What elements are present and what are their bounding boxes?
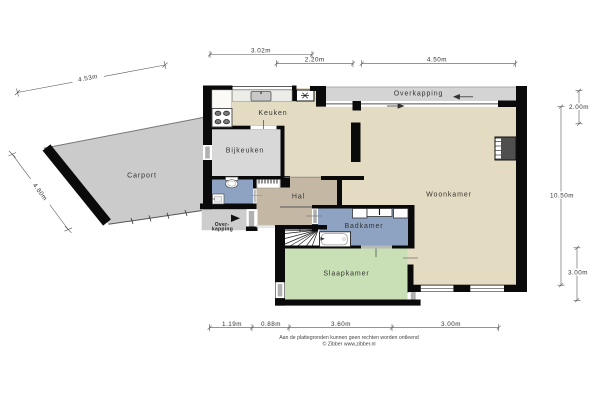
svg-text:3.00m: 3.00m [441, 321, 461, 328]
svg-text:2.20m: 2.20m [305, 57, 325, 64]
svg-text:4.50m: 4.50m [427, 57, 447, 64]
svg-text:1.19m: 1.19m [222, 321, 242, 328]
svg-text:Carport: Carport [127, 173, 157, 180]
svg-text:0.88m: 0.88m [261, 321, 281, 328]
svg-text:Aan de plattegronden kunnen ge: Aan de plattegronden kunnen geen rechten… [279, 335, 419, 341]
svg-text:Overkapping: Overkapping [394, 91, 444, 98]
svg-text:2.00m: 2.00m [569, 104, 589, 111]
svg-text:kapping: kapping [212, 226, 233, 232]
svg-text:3.00m: 3.00m [568, 270, 588, 277]
svg-text:10.50m: 10.50m [550, 193, 574, 200]
svg-text:© Zibber www.zibber.nl: © Zibber www.zibber.nl [322, 341, 375, 348]
svg-text:Badkamer: Badkamer [344, 223, 383, 230]
svg-text:Bijkeuken: Bijkeuken [226, 148, 264, 155]
svg-text:Slaapkamer: Slaapkamer [323, 271, 369, 278]
svg-text:Woonkamer: Woonkamer [426, 192, 472, 199]
svg-text:Keuken: Keuken [258, 110, 287, 117]
svg-text:Hal: Hal [292, 194, 305, 201]
svg-text:3.60m: 3.60m [331, 321, 351, 328]
svg-text:3.02m: 3.02m [251, 48, 271, 55]
